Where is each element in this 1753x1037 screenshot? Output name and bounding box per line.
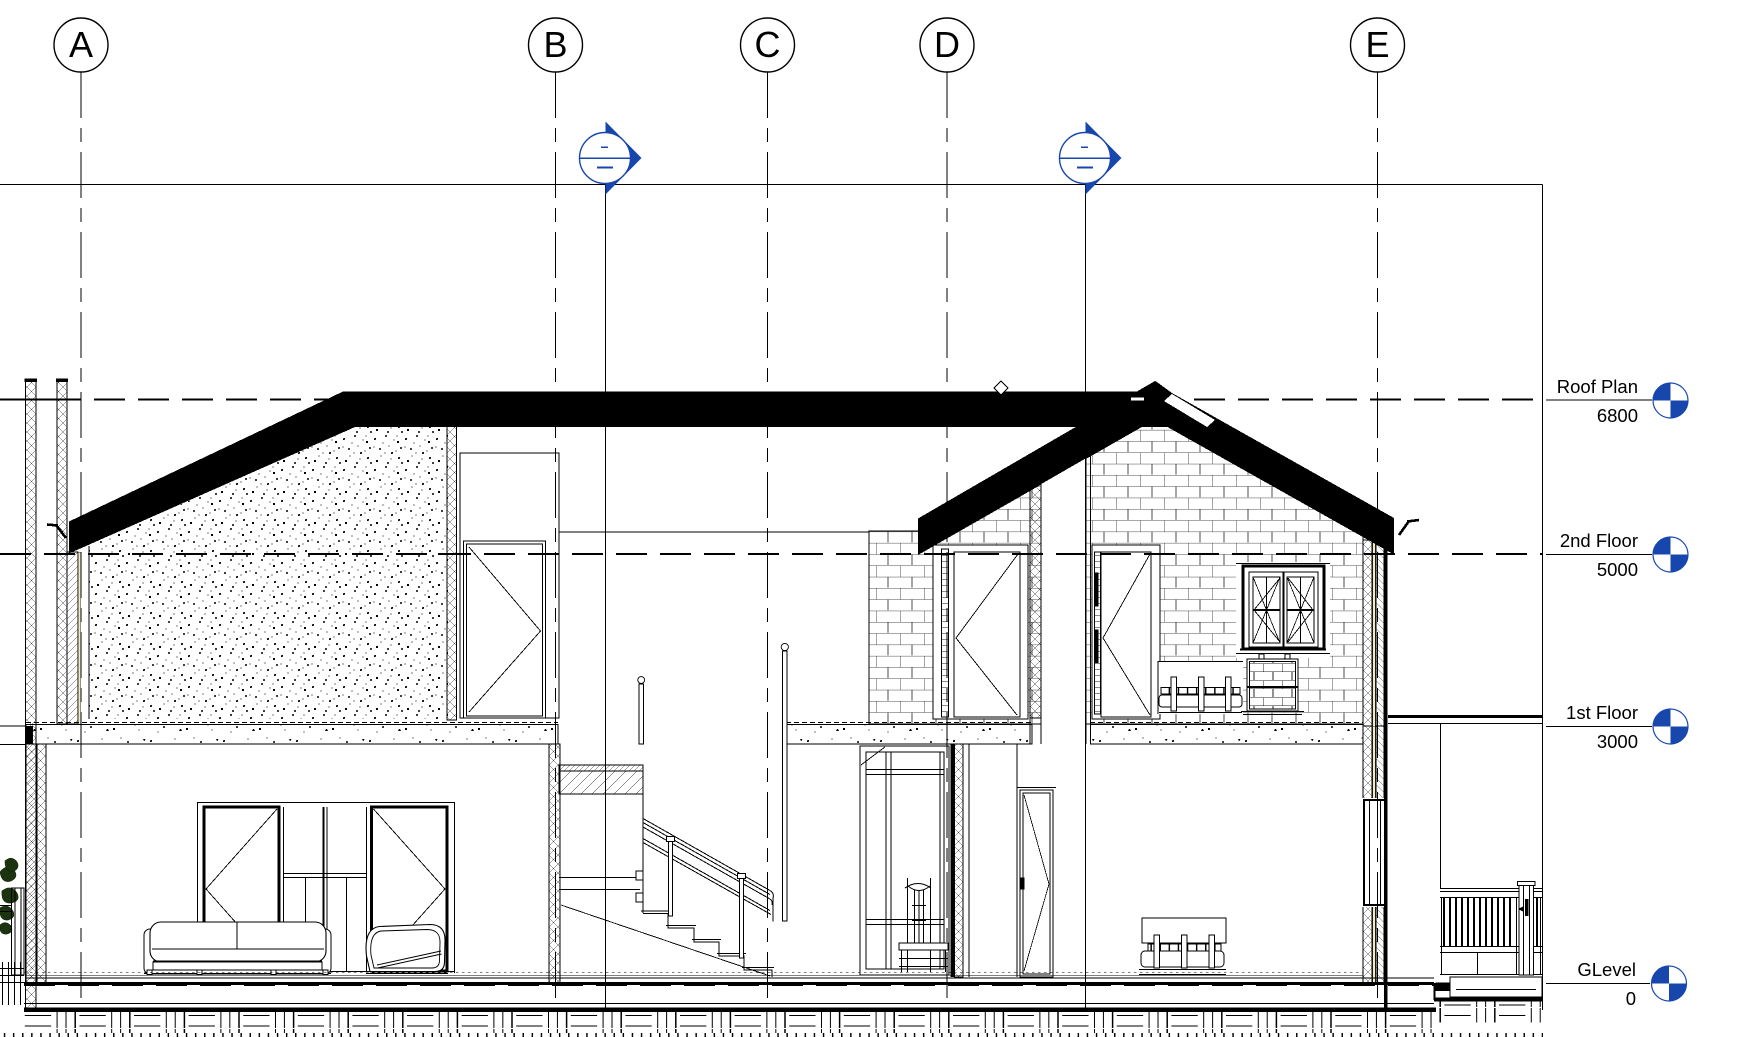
svg-text:E: E [1365,24,1389,65]
svg-text:6800: 6800 [1597,405,1638,426]
svg-text:3000: 3000 [1597,731,1638,752]
svg-text:5000: 5000 [1597,559,1638,580]
svg-text:B: B [543,24,567,65]
svg-text:C: C [755,24,781,65]
svg-text:GLevel: GLevel [1577,959,1636,980]
svg-text:A: A [69,24,93,65]
svg-text:2nd Floor: 2nd Floor [1560,530,1638,551]
svg-text:1st Floor: 1st Floor [1566,702,1638,723]
svg-text:D: D [934,24,960,65]
svg-text:0: 0 [1626,988,1636,1009]
svg-text:Roof Plan: Roof Plan [1557,376,1638,397]
